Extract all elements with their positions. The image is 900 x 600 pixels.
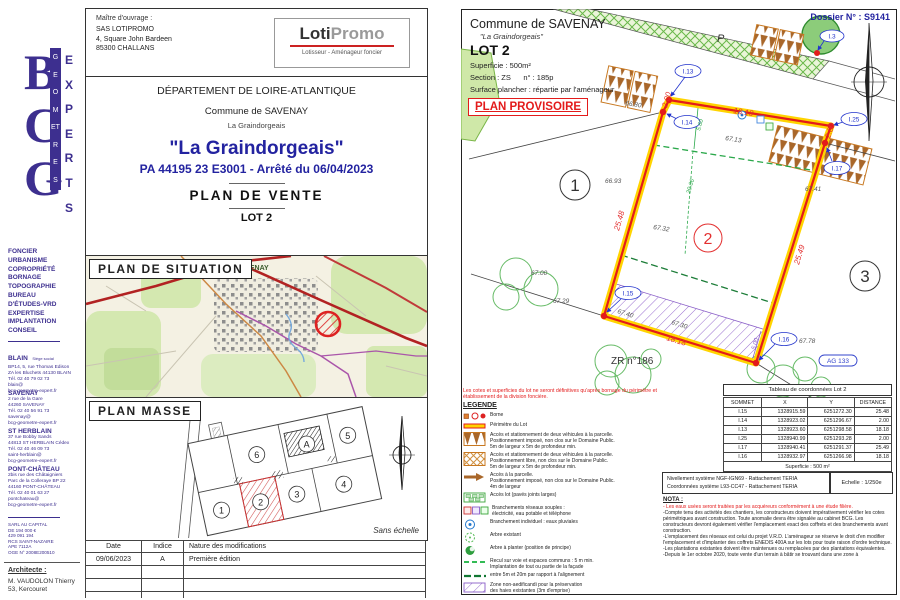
- masse-scale-note: Sans échelle: [373, 526, 419, 535]
- architect-name: M. VAUDOLON Thierry 53, Kercouret: [8, 578, 75, 594]
- coords-table: SOMMET X Y DISTANCE I.151328915.59625127…: [723, 397, 892, 472]
- spot-6741: 67.41: [805, 186, 822, 193]
- coords-row: I.141328923.026251296.672.00: [724, 417, 892, 426]
- situation-title-label: PLAN DE SITUATION: [89, 259, 252, 279]
- c-r5-d: 18.18: [854, 453, 891, 462]
- masse-lot6-number: 6: [254, 450, 259, 460]
- office-st-herblain-name: ST HERBLAIN: [8, 428, 80, 435]
- nota-p1: -Compte tenu des activités des chantiers…: [663, 510, 893, 534]
- legend-borne: Borne: [490, 412, 503, 418]
- c-r1-d: 2.00: [854, 417, 891, 426]
- doc-type: PLAN DE VENTE: [86, 188, 427, 203]
- rp-lieu: "La Graindorgeais": [480, 32, 543, 41]
- urban-area: [214, 278, 318, 352]
- c-r2-y: 6251298.58: [808, 426, 854, 435]
- parcel-number-1: 1: [570, 176, 579, 195]
- masse-lot1-number: 1: [219, 506, 224, 516]
- mods-row-3: [86, 579, 426, 592]
- c-r4-s: I.17: [724, 444, 762, 453]
- masse-lot4-number: 4: [341, 480, 346, 490]
- legend-perimetre: Périmètre du Lot: [490, 422, 527, 428]
- georef-line2: Coordonnées système L93-CC47 - Rattachem…: [667, 483, 825, 491]
- office-blain-tag: Siège social: [32, 356, 54, 361]
- vertex-label-i14: I.14: [682, 120, 693, 127]
- modifications-table: Date Indice Nature des modifications 09/…: [85, 540, 426, 598]
- mods-header-date: Date: [86, 541, 142, 553]
- rp-lot-title: LOT 2: [470, 42, 510, 58]
- parcel-number-2: 2: [704, 231, 713, 248]
- eaux-pluviales-icon: [463, 519, 487, 530]
- nota-title: NOTA :: [663, 497, 893, 503]
- nota-section: NOTA : - Les eaux usées seront traitées …: [663, 497, 893, 558]
- vertex-label-i16: I.16: [779, 337, 790, 344]
- architect-divider: [4, 562, 80, 563]
- lotipromo-logo-promo: Promo: [331, 24, 385, 43]
- title-block: DÉPARTEMENT DE LOIRE-ATLANTIQUE Commune …: [85, 76, 428, 257]
- mods-row1-date: 09/06/2023: [86, 553, 142, 566]
- bcg-logo-geometres: GEOMETRES: [50, 48, 61, 190]
- masse-lot2-number: 2: [258, 497, 263, 507]
- c-r5-s: I.16: [724, 453, 762, 462]
- legal-divider: [8, 517, 60, 518]
- acces-lot-icon: [463, 492, 487, 503]
- lot-number: LOT 2: [86, 212, 427, 224]
- project-name: "La Graindorgeais": [86, 138, 427, 160]
- c-r2-d: 18.18: [854, 426, 891, 435]
- c-r3-y: 6251293.28: [808, 435, 854, 444]
- office-blain: BLAIN Siège social BP14, 5, rue Thomas E…: [8, 347, 80, 395]
- coords-row: I.251328940.996251293.282.00: [724, 435, 892, 444]
- c-r0-x: 1328915.59: [762, 408, 808, 417]
- spot-6680: 66.80: [625, 100, 643, 110]
- coords-row: I.151328915.596251272.3025.48: [724, 408, 892, 417]
- departement-title: DÉPARTEMENT DE LOIRE-ATLANTIQUE: [86, 85, 427, 97]
- office-pont-chateau-name: PONT-CHÂTEAU: [8, 466, 80, 473]
- recul-5m-icon: [463, 558, 487, 566]
- vertex-label-i25: I.25: [849, 117, 860, 124]
- bcg-logo-experts: EXPERTS: [63, 48, 75, 220]
- c-r5-y: 6251266.98: [808, 453, 854, 462]
- c-r0-d: 25.48: [854, 408, 891, 417]
- legend-eaux-pluviales: Branchement individuel : eaux pluviales: [490, 519, 578, 525]
- c-r1-y: 6251296.67: [808, 417, 854, 426]
- masse-north-arrow-icon: [389, 416, 415, 490]
- borne-icon: [463, 412, 487, 420]
- spot-6700: 67.00: [531, 270, 548, 277]
- sidebar-services-list: FONCIER URBANISME COPROPRIÉTÉ BORNAGE TO…: [8, 248, 57, 336]
- perimetre-icon: [463, 422, 487, 430]
- commune-title: Commune de SAVENAY: [86, 106, 427, 117]
- recul-20m-icon: [463, 572, 487, 580]
- spot-6732: 67.32: [653, 224, 671, 234]
- legend-parking-libre: Accès et stationnement de deux véhicules…: [490, 452, 613, 470]
- vertex-label-i13: I.13: [683, 69, 694, 76]
- spot-6729: 67.29: [553, 298, 570, 305]
- georef-line1: Nivellement système NGF-IGN69 - Rattache…: [667, 475, 825, 483]
- dim-20-66: 20.66: [686, 178, 696, 196]
- scale-box: Echelle : 1/250e: [830, 472, 893, 494]
- coords-h-y: Y: [808, 398, 854, 408]
- spot-6713: 67.13: [725, 135, 743, 145]
- vertex-label-i15: I.15: [623, 291, 634, 298]
- legend-acces: Accès à la parcelle. Positionnement impo…: [490, 472, 615, 490]
- architect-label: Architecte :: [8, 567, 47, 574]
- ag-parcel-label: AG 133: [827, 358, 849, 365]
- georef-box: Nivellement système NGF-IGN69 - Rattache…: [662, 472, 830, 494]
- masse-lotA-number: A: [304, 439, 310, 449]
- dossier-number: Dossier N° : S9141: [700, 12, 890, 22]
- rp-surface-plancher: Surface plancher : répartie par l'aménag…: [470, 85, 614, 94]
- mods-header-indice: Indice: [142, 541, 184, 553]
- c-r1-s: I.14: [724, 417, 762, 426]
- mods-row-2: [86, 566, 426, 579]
- site-location-marker: [316, 312, 340, 336]
- dim-2m-left: 2.00: [660, 91, 673, 110]
- company-legal-info: SARL AU CAPITAL DE 194 000 € 429 091 194…: [8, 522, 55, 556]
- utility-box-2: [766, 123, 773, 130]
- office-pont-chateau: PONT-CHÂTEAU 2bis rue des Châtaigniers P…: [8, 466, 80, 508]
- legend-acces-lot: Accès lot (pavés joints larges): [490, 492, 556, 498]
- mods-row-4: [86, 592, 426, 599]
- rp-commune: Commune de SAVENAY: [470, 17, 606, 31]
- legend-zone-non-aedificandi: Zone non-aedificandi pour la préservatio…: [490, 582, 582, 594]
- acces-arrow-icon: [463, 472, 487, 482]
- nota-p2: -L'emplacement des réseaux est celui du …: [663, 534, 893, 546]
- espace-vert-p-label: P: [717, 33, 725, 45]
- plan-de-vente-sheet: BCG GEOMETRES EXPERTS FONCIER URBANISME …: [0, 0, 900, 600]
- legend: LEGENDE Borne Périmètre du Lot Accès et …: [463, 402, 675, 596]
- arbre-existant-icon: [463, 532, 487, 543]
- legend-title: LEGENDE: [463, 402, 675, 409]
- mods-row1-indice: A: [142, 553, 184, 566]
- c-r2-s: I.13: [724, 426, 762, 435]
- parking-impose-icon: [463, 432, 487, 446]
- vertex-label-i17: I.17: [832, 166, 843, 173]
- legend-branchements: Branchements réseaux souples : électrici…: [492, 505, 571, 517]
- c-r3-d: 2.00: [854, 435, 891, 444]
- owner-title: Maître d'ouvrage :: [96, 15, 152, 22]
- c-r3-x: 1328940.99: [762, 435, 808, 444]
- office-savenay-lines: 2 rue de la Gare 44260 SAVENAY Tél. 02 4…: [8, 397, 80, 427]
- office-pont-chateau-lines: 2bis rue des Châtaigniers Parc de la Col…: [8, 473, 80, 508]
- mods-header-nature: Nature des modifications: [184, 541, 426, 553]
- coords-h-sommet: SOMMET: [724, 398, 762, 408]
- lotipromo-logo-underline: [290, 45, 394, 47]
- zone-non-aedificandi-icon: [463, 582, 487, 593]
- mods-row-1: 09/06/2023 A Première édition: [86, 553, 426, 566]
- dim-top: 18.18: [733, 106, 755, 118]
- legend-arbre-existant: Arbre existant: [490, 532, 521, 538]
- arbre-planter-icon: [463, 545, 487, 556]
- c-r0-s: I.15: [724, 408, 762, 417]
- c-r4-y: 6251291.37: [808, 444, 854, 453]
- definitive-note: Les cotes et superficies du lot ne seron…: [463, 388, 681, 401]
- parcel-number-3: 3: [860, 267, 869, 286]
- nota-p4: -Depuis le 1er octobre 2020, toute vente…: [663, 552, 893, 558]
- office-savenay-name: SAVENAY: [8, 390, 80, 397]
- mods-row1-nature: Première édition: [184, 553, 426, 566]
- c-r0-y: 6251272.30: [808, 408, 854, 417]
- office-savenay: SAVENAY 2 rue de la Gare 44260 SAVENAY T…: [8, 390, 80, 427]
- utility-box-1: [757, 116, 764, 123]
- legend-arbre-planter: Arbre à planter (position de principe): [490, 545, 571, 551]
- permit-number: PA 44195 23 E3001 - Arrêté du 06/04/2023: [86, 162, 427, 176]
- legend-recul-20m: entre 5m et 20m par rapport à l'aligneme…: [490, 572, 584, 578]
- masse-title-label: PLAN MASSE: [89, 401, 201, 421]
- lotipromo-logo-subtitle: Lotisseur - Aménageur foncier: [275, 50, 409, 56]
- office-st-herblain-lines: 37 rue Bobby Sands 44813 ST HERBLAIN Céd…: [8, 435, 80, 465]
- spot-6778: 67.78: [799, 338, 816, 345]
- situation-map-box: SAVENAY PLAN DE SITUATION: [85, 255, 428, 399]
- c-r5-x: 1328932.97: [762, 453, 808, 462]
- modifications-table-wrap: Date Indice Nature des modifications 09/…: [85, 540, 426, 598]
- plan-provisoire-stamp: PLAN PROVISOIRE: [468, 98, 588, 116]
- coords-h-x: X: [762, 398, 808, 408]
- dim-left: 25.48: [612, 209, 627, 232]
- owner-box: Maître d'ouvrage : SAS LOTIPROMO 4, Squa…: [85, 8, 428, 78]
- lotipromo-logo-loti: Loti: [300, 24, 331, 43]
- coords-row: I.131328923.606251298.5818.18: [724, 426, 892, 435]
- parking-libre-icon: [463, 452, 487, 466]
- office-blain-name: BLAIN: [8, 355, 28, 362]
- coords-superficie: Superficie : 500 m²: [724, 462, 892, 472]
- sidebar-divider: [8, 341, 60, 342]
- office-st-herblain: ST HERBLAIN 37 rue Bobby Sands 44813 ST …: [8, 428, 80, 465]
- legend-recul-5m: Recul sur voie et espaces communs : 5 m …: [490, 558, 594, 570]
- rp-section: Section : ZS n° : 185p: [470, 73, 553, 82]
- coords-table-title: Tableau de coordonnées Lot 2: [723, 384, 892, 396]
- c-r3-s: I.25: [724, 435, 762, 444]
- rp-superficie: Superficie : 500m²: [470, 61, 531, 70]
- spot-6693: 66.93: [605, 178, 622, 185]
- coords-row: I.171328940.416251291.3725.49: [724, 444, 892, 453]
- owner-address: SAS LOTIPROMO 4, Square John Bardeen 853…: [96, 25, 172, 54]
- c-r1-x: 1328923.02: [762, 417, 808, 426]
- c-r4-x: 1328940.41: [762, 444, 808, 453]
- masse-lot3-number: 3: [294, 490, 299, 500]
- c-r4-d: 25.49: [854, 444, 891, 453]
- c-r2-x: 1328923.60: [762, 426, 808, 435]
- title-divider-1: [229, 183, 285, 184]
- zr-parcel-label: ZR n°186: [611, 356, 654, 367]
- legend-parking-impose: Accès et stationnement de deux véhicules…: [490, 432, 615, 450]
- coords-row: I.161328932.976251266.9818.18: [724, 453, 892, 462]
- masse-plan-box: 1 2 3 4 5 6 A PLAN MASSE Sans échelle: [85, 397, 428, 541]
- masse-lot5-number: 5: [345, 431, 350, 441]
- lieu-dit: La Graindorgeais: [86, 121, 427, 130]
- lotipromo-logo-box: LotiPromo Lotisseur - Aménageur foncier: [274, 18, 410, 68]
- title-divider-2: [229, 208, 285, 209]
- coords-h-dist: DISTANCE: [854, 398, 891, 408]
- branchements-icon: [463, 505, 489, 516]
- vertex-label-i3: I.3: [828, 34, 836, 41]
